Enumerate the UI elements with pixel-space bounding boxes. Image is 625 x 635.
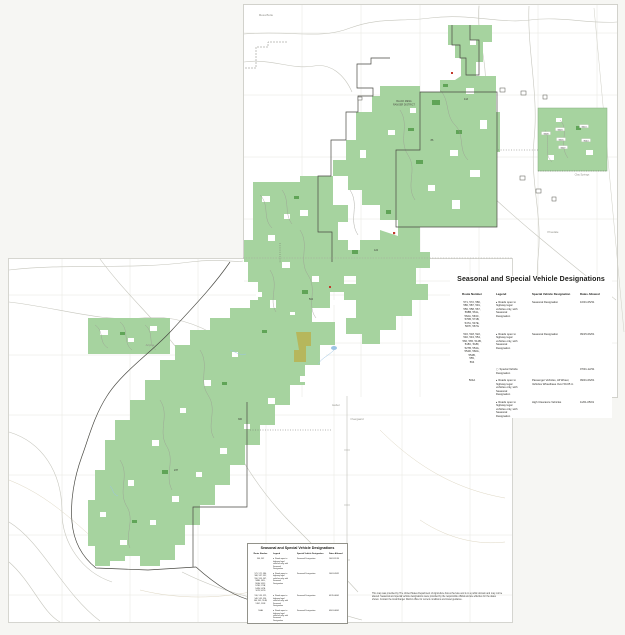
legend-symbol-text: ▸Roads open to highway legal vehicles on… bbox=[496, 301, 530, 329]
map-label: Clay Springs bbox=[575, 173, 590, 177]
legend-designation: High Clearance Vehicles bbox=[532, 401, 578, 419]
route-symbol-icon: ▸ bbox=[273, 558, 274, 560]
route-symbol-icon: ▢ bbox=[496, 368, 499, 371]
legend-designation: Seasonal Designation bbox=[297, 558, 327, 570]
map-label: Mesa Butte bbox=[259, 13, 274, 17]
legend-route-numbers: 504, 542 bbox=[250, 558, 271, 570]
route-symbol-icon: ▸ bbox=[496, 333, 497, 336]
legend-table: Route NumberLegendSpecial Vehicle Design… bbox=[250, 553, 345, 622]
route-chip-number: 9407 bbox=[561, 147, 567, 149]
route-chip-number: 9044 bbox=[584, 140, 590, 142]
legend-designation: Seasonal Designation bbox=[297, 610, 327, 622]
legend-col-header: Legend bbox=[273, 553, 295, 556]
route-symbol-icon: ▸ bbox=[273, 573, 274, 575]
legend-col-header: Legend bbox=[496, 293, 530, 297]
map-disclaimer: This map was provided by The United Stat… bbox=[372, 593, 503, 603]
legend-route-numbers bbox=[450, 368, 494, 375]
route-chip-number: 9416 bbox=[559, 139, 565, 141]
route-chip-number: 9408 bbox=[544, 133, 550, 135]
legend-symbol-text: ▸Roads open to highway legal vehicles on… bbox=[273, 595, 295, 607]
legend-designation: Passenger Vehicles, All Wheel, Vehicles … bbox=[532, 379, 578, 397]
legend-panel-lower: Seasonal and Special Vehicle Designation… bbox=[247, 543, 348, 624]
legend-dates: 07/01-12/31 bbox=[580, 368, 610, 375]
legend-designation: Seasonal Designation bbox=[532, 301, 578, 329]
legend-col-header: Dates Allowed bbox=[580, 293, 610, 297]
route-symbol-icon: ▸ bbox=[496, 379, 497, 382]
map-label: 413 bbox=[464, 98, 469, 101]
legend-symbol-text: ▸Roads open to highway legal vehicles on… bbox=[273, 610, 295, 622]
legend-designation bbox=[532, 368, 578, 375]
legend-title: Seasonal and Special Vehicle Designation… bbox=[250, 546, 345, 550]
legend-symbol-text: ▸Roads open to highway legal vehicles on… bbox=[496, 333, 530, 365]
legend-dates: 11/01-05/01 bbox=[580, 401, 610, 419]
route-symbol-icon: ▸ bbox=[273, 610, 274, 612]
route-symbol-icon: ▸ bbox=[273, 595, 274, 597]
legend-route-numbers: 504A bbox=[450, 379, 494, 397]
legend-symbol-text: ▸Roads open to highway legal vehicles on… bbox=[273, 558, 295, 570]
route-symbol-icon: ▸ bbox=[496, 301, 497, 304]
legend-col-header: Dates Allowed bbox=[329, 553, 343, 556]
map-sheet-composite: Mesa ButteBLACK MESARANGER DISTRICTClay … bbox=[0, 0, 625, 635]
legend-dates: 10/01-05/31 bbox=[329, 573, 343, 593]
route-chip-number: 9413 bbox=[582, 126, 588, 128]
legend-route-numbers: 571, 572, 580, 586, 587, 591, 556, 558, … bbox=[450, 301, 494, 329]
legend-designation: Seasonal Designation bbox=[532, 333, 578, 365]
map-label: 504 bbox=[309, 298, 314, 301]
legend-dates: 09/01-06/01 bbox=[329, 610, 343, 622]
legend-route-numbers: 504A bbox=[250, 610, 271, 622]
legend-symbol-text: ▸Roads open to highway legal vehicles on… bbox=[496, 401, 530, 419]
legend-designation: Seasonal Designation bbox=[297, 573, 327, 593]
map-label: 300 bbox=[238, 418, 243, 421]
legend-route-numbers: 516, 518, 522, 540, 543, 554, 560, 565, … bbox=[450, 333, 494, 365]
legend-dates: 09/15-06/01 bbox=[580, 333, 610, 365]
legend-col-header: Special Vehicle Designation bbox=[297, 553, 327, 556]
legend-dates: 10/01-05/31 bbox=[580, 301, 610, 329]
map-label: Heber bbox=[332, 403, 340, 407]
legend-designation: Seasonal Designation bbox=[297, 595, 327, 607]
legend-symbol-text: ▸Roads open to highway legal vehicles on… bbox=[273, 573, 295, 593]
legend-dates: 09/15-06/01 bbox=[329, 595, 343, 607]
legend-symbol-text: ▸Roads open to highway legal vehicles on… bbox=[496, 379, 530, 397]
map-label: 237 bbox=[174, 469, 179, 472]
legend-dates: 10/01-11/30 bbox=[329, 558, 343, 570]
legend-route-numbers: 516, 518, 522, 540, 543, 554, 560, 565, … bbox=[250, 595, 271, 607]
legend-dates: 09/01-06/01 bbox=[580, 379, 610, 397]
legend-table: Route NumberLegendSpecial Vehicle Design… bbox=[450, 293, 612, 418]
map-label: 124 bbox=[374, 249, 379, 252]
map-label: Overgaard bbox=[350, 417, 364, 421]
map-label: Pinedale bbox=[548, 230, 559, 234]
legend-col-header: Route Number bbox=[250, 553, 271, 556]
route-symbol-icon: ▸ bbox=[496, 401, 497, 404]
legend-col-header: Special Vehicle Designation bbox=[532, 293, 578, 297]
legend-route-numbers bbox=[450, 401, 494, 419]
legend-panel-upper: Seasonal and Special Vehicle Designation… bbox=[450, 276, 612, 418]
legend-route-numbers: 571, 572, 580, 586, 587, 591, 556, 558, … bbox=[250, 573, 271, 593]
map-label: RANGER DISTRICT bbox=[393, 104, 415, 107]
route-chip-number: 9403 bbox=[558, 129, 564, 131]
map-label: Aripine bbox=[146, 343, 155, 347]
legend-symbol-text: ▢Special Vehicle Designation bbox=[496, 368, 530, 375]
legend-title: Seasonal and Special Vehicle Designation… bbox=[450, 276, 612, 283]
legend-col-header: Route Number bbox=[450, 293, 494, 297]
